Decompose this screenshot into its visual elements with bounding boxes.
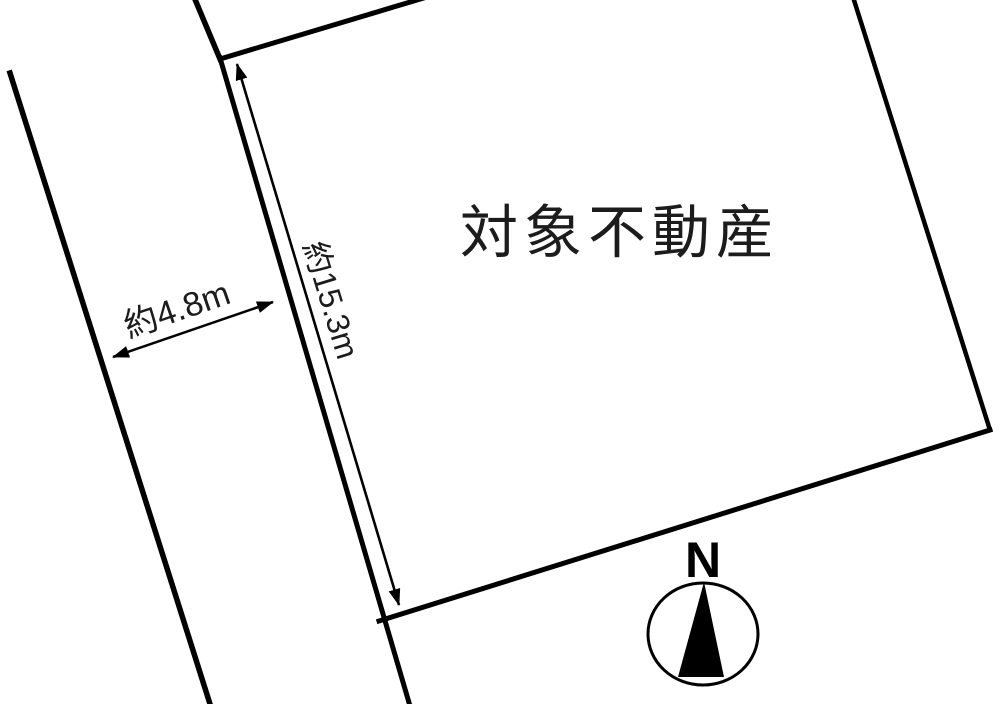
land-plot-diagram: 対象不動産 約4.8m 約15.3m N bbox=[0, 0, 1000, 704]
property-label: 対象不動産 bbox=[460, 201, 780, 266]
diagram-background bbox=[0, 0, 1000, 704]
compass-north-label: N bbox=[685, 532, 721, 588]
plot-survey-drawing: 対象不動産 約4.8m 約15.3m N bbox=[0, 0, 1000, 704]
